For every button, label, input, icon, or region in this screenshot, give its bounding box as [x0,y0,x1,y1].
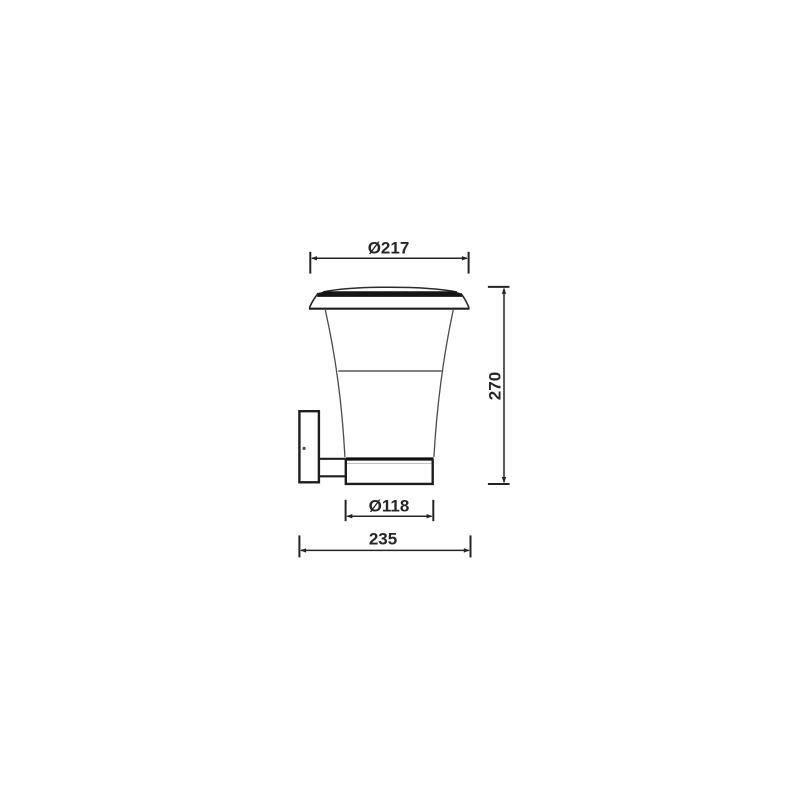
svg-text:Ø118: Ø118 [369,497,410,516]
svg-text:Ø217: Ø217 [368,239,410,258]
svg-text:235: 235 [369,530,397,549]
svg-text:270: 270 [486,372,505,400]
